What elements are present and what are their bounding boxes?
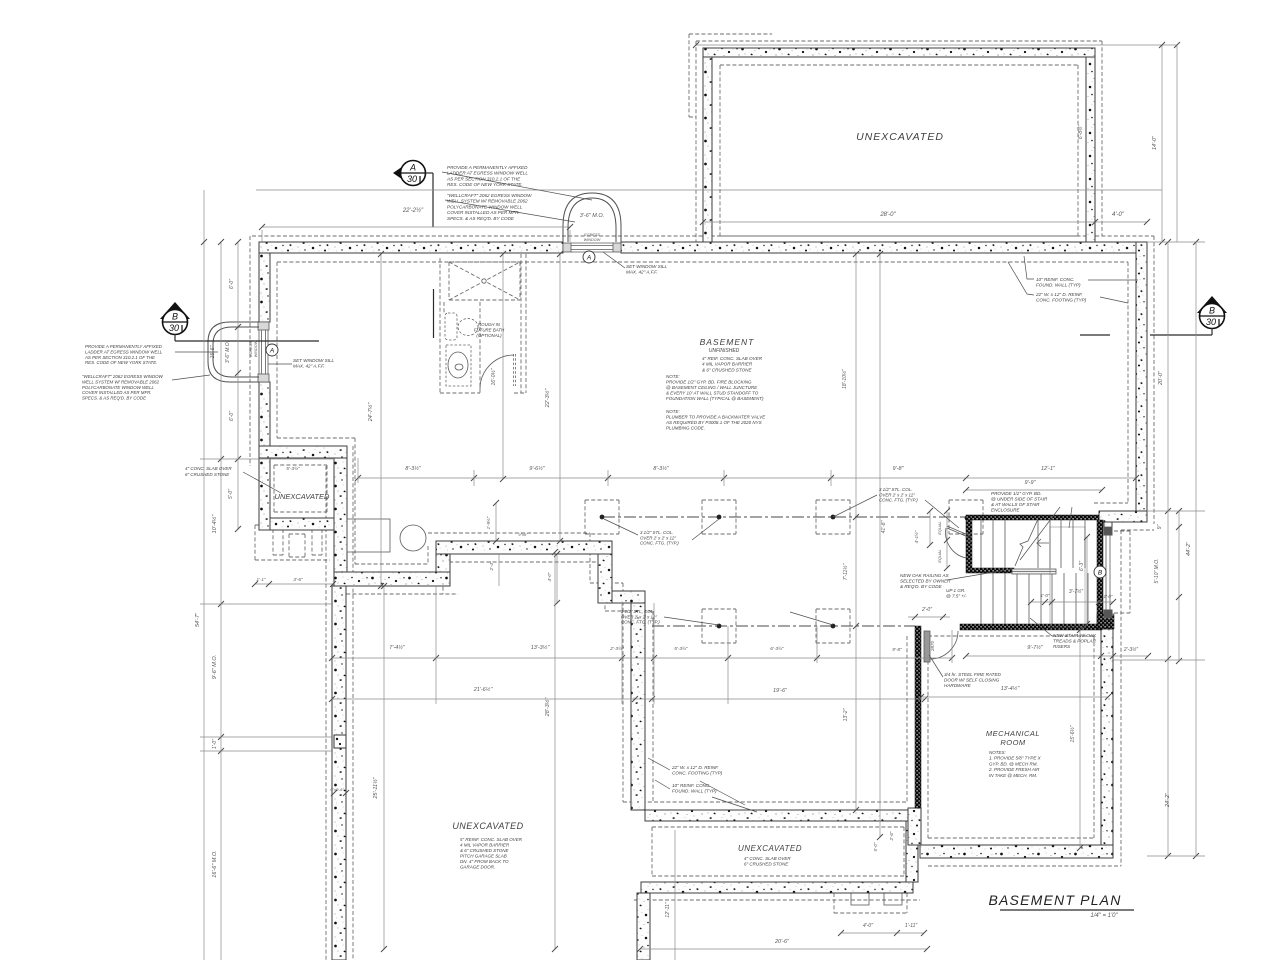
svg-text:4 MIL VAPOR BARRIER: 4 MIL VAPOR BARRIER: [702, 362, 753, 367]
svg-text:SPECS. & AS REQ'D. BY CODE: SPECS. & AS REQ'D. BY CODE: [82, 396, 146, 401]
svg-text:18'-10½": 18'-10½": [841, 369, 848, 389]
svg-text:EQUAL: EQUAL: [937, 549, 942, 563]
svg-text:EGRESS: EGRESS: [584, 233, 600, 237]
svg-text:15'-6½": 15'-6½": [1069, 725, 1076, 742]
svg-text:MAX. 42" A.F.F.: MAX. 42" A.F.F.: [293, 364, 325, 369]
svg-text:22'-3½": 22'-3½": [544, 388, 551, 409]
svg-text:4'-0": 4'-0": [547, 572, 552, 581]
svg-text:@ BASEMENT CEILING / WALL JUNC: @ BASEMENT CEILING / WALL JUNCTURE: [666, 385, 758, 390]
svg-text:2870: 2870: [967, 532, 972, 544]
svg-text:PROVIDE A PERMANENTLY AFFIXED: PROVIDE A PERMANENTLY AFFIXED: [447, 165, 528, 170]
svg-text:4 MIL VAPOR BARRIER: 4 MIL VAPOR BARRIER: [460, 843, 510, 848]
svg-text:A: A: [269, 347, 274, 354]
svg-text:UNEXCAVATED: UNEXCAVATED: [452, 821, 523, 831]
svg-text:PITCH GARAGE SLAB: PITCH GARAGE SLAB: [460, 854, 507, 859]
svg-text:BASEMENT PLAN: BASEMENT PLAN: [988, 892, 1121, 908]
svg-text:5'-3½": 5'-3½": [674, 645, 688, 652]
svg-text:"WELLCRAFT" 2062 EGRESS WINDOW: "WELLCRAFT" 2062 EGRESS WINDOW: [447, 193, 532, 198]
svg-text:NOTE:: NOTE:: [666, 409, 681, 414]
svg-text:7'-4½": 7'-4½": [389, 644, 406, 651]
svg-text:& REQ'D. BY CODE: & REQ'D. BY CODE: [900, 584, 943, 589]
svg-text:ROOM: ROOM: [1000, 738, 1026, 747]
svg-text:AS PER SECTION 310.2.1 OF THE: AS PER SECTION 310.2.1 OF THE: [446, 176, 521, 181]
svg-text:FOUNDATION WALL (TYPICAL @ BAS: FOUNDATION WALL (TYPICAL @ BASEMENT): [666, 396, 764, 401]
svg-text:EGRESS: EGRESS: [249, 341, 253, 357]
svg-text:DN. 4" FROM BACK TO: DN. 4" FROM BACK TO: [460, 859, 509, 864]
svg-text:FOUND. WALL (TYP): FOUND. WALL (TYP): [672, 789, 717, 794]
svg-text:3 1/2" STL. COL.: 3 1/2" STL. COL.: [621, 609, 654, 614]
svg-text:21'-6½": 21'-6½": [473, 686, 494, 693]
svg-text:1'-0": 1'-0": [1104, 594, 1113, 599]
svg-text:ROUGH IN: ROUGH IN: [478, 322, 501, 327]
svg-text:20'-6": 20'-6": [774, 939, 790, 945]
svg-text:WINDOW: WINDOW: [254, 340, 258, 357]
svg-text:3 1/2" STL. COL.: 3 1/2" STL. COL.: [640, 530, 673, 535]
svg-text:9": 9": [1157, 525, 1163, 530]
svg-text:4" CONC. SLAB OVER: 4" CONC. SLAB OVER: [185, 466, 232, 471]
svg-text:22" W. x 12" D. REINF.: 22" W. x 12" D. REINF.: [671, 765, 719, 770]
svg-text:25'-11½": 25'-11½": [372, 776, 379, 799]
svg-text:BASEMENT: BASEMENT: [700, 337, 755, 347]
svg-text:10" REINF. CONC.: 10" REINF. CONC.: [1036, 277, 1075, 282]
svg-text:14'-0": 14'-0": [1152, 135, 1158, 150]
svg-text:UNFINISHED: UNFINISHED: [709, 348, 740, 354]
svg-text:6" CRUSHED STONE: 6" CRUSHED STONE: [185, 472, 230, 477]
svg-text:3/4 hr. STEEL FIRE RATED: 3/4 hr. STEEL FIRE RATED: [944, 672, 1002, 677]
svg-text:3'-6": 3'-6": [293, 577, 303, 583]
svg-text:6'-3½": 6'-3½": [770, 645, 784, 652]
svg-text:"WELLCRAFT" 2062 EGRESS WINDOW: "WELLCRAFT" 2062 EGRESS WINDOW: [82, 374, 164, 379]
svg-text:5'-10" M.O.: 5'-10" M.O.: [1154, 559, 1160, 584]
svg-text:5'-0": 5'-0": [873, 842, 878, 851]
svg-text:4" REIF. CONC. SLAB OVER: 4" REIF. CONC. SLAB OVER: [702, 356, 763, 361]
svg-text:& EVERY 10' AT WALL STUD STAND: & EVERY 10' AT WALL STUD STANDOFF TO: [666, 391, 759, 396]
svg-text:8'-3½": 8'-3½": [653, 465, 670, 472]
svg-text:13'-4½": 13'-4½": [1001, 685, 1021, 692]
svg-text:2'-0": 2'-0": [921, 607, 932, 613]
svg-text:2'-3½": 2'-3½": [609, 645, 624, 652]
svg-text:13'-3½": 13'-3½": [531, 644, 551, 651]
svg-text:5" REINF. CONC. SLAB OVER: 5" REINF. CONC. SLAB OVER: [460, 837, 523, 842]
svg-text:B: B: [1209, 306, 1215, 316]
svg-text:9'-9": 9'-9": [1025, 480, 1037, 486]
svg-text:24'-7½": 24'-7½": [367, 402, 374, 423]
svg-text:1. PROVIDE 5/8" TYPE X: 1. PROVIDE 5/8" TYPE X: [989, 756, 1042, 761]
svg-text:3'-6" M.O.: 3'-6" M.O.: [580, 213, 604, 219]
svg-text:8'-3½": 8'-3½": [405, 465, 422, 472]
svg-text:UNEXCAVATED: UNEXCAVATED: [275, 492, 330, 501]
svg-text:& AT WALLS OF STAIR: & AT WALLS OF STAIR: [991, 502, 1040, 507]
svg-text:SET WINDOW SILL: SET WINDOW SILL: [626, 264, 668, 269]
svg-text:1'-0": 1'-0": [1041, 593, 1050, 598]
svg-text:POLYCARBONATE WINDOW WELL: POLYCARBONATE WINDOW WELL: [82, 385, 155, 390]
svg-text:PROVIDE 1/2" GYP. BD. FIRE BLO: PROVIDE 1/2" GYP. BD. FIRE BLOCKING: [666, 380, 752, 385]
svg-text:SET WINDOW SILL: SET WINDOW SILL: [293, 358, 335, 363]
svg-text:B: B: [1098, 569, 1103, 576]
svg-text:OVER 2' x 2' x 12": OVER 2' x 2' x 12": [879, 492, 915, 497]
svg-text:FOUND. WALL (TYP): FOUND. WALL (TYP): [1036, 283, 1081, 288]
svg-text:CONC. FOOTING (TYP): CONC. FOOTING (TYP): [1036, 298, 1087, 303]
svg-text:UNEXCAVATED: UNEXCAVATED: [856, 131, 944, 143]
svg-text:6" CRUSHED STONE: 6" CRUSHED STONE: [744, 862, 789, 867]
svg-text:9'-7½": 9'-7½": [1027, 644, 1044, 651]
svg-text:6"x0'-6": 6"x0'-6": [330, 787, 344, 792]
svg-text:WELL SYSTEM W/ REMOVABLE 2062: WELL SYSTEM W/ REMOVABLE 2062: [82, 379, 160, 384]
svg-text:PROVIDE A PERMANENTLY AFFIXED: PROVIDE A PERMANENTLY AFFIXED: [85, 344, 163, 349]
svg-text:& 6" CRUSHED STONE: & 6" CRUSHED STONE: [460, 848, 510, 853]
svg-text:@ UNDER SIDE OF STAIR: @ UNDER SIDE OF STAIR: [991, 497, 1048, 502]
svg-text:NOTE:: NOTE:: [666, 374, 681, 379]
svg-text:NEW STAIR W/ OAK: NEW STAIR W/ OAK: [1053, 633, 1097, 638]
svg-text:28'-0": 28'-0": [879, 212, 896, 218]
svg-text:AS REQUIRED BY P3008.1 OF THE: AS REQUIRED BY P3008.1 OF THE 2020 NYS: [665, 420, 762, 425]
svg-text:OVER 2' x 2' x 12": OVER 2' x 2' x 12": [621, 614, 657, 619]
svg-text:1/4" = 1'0": 1/4" = 1'0": [1090, 913, 1118, 919]
svg-text:MECHANICAL: MECHANICAL: [986, 729, 1040, 738]
svg-text:UP 1 GR.: UP 1 GR.: [946, 588, 966, 593]
svg-text:16'-6" M.O.: 16'-6" M.O.: [212, 850, 218, 877]
svg-text:2. PROVIDE FRESH AIR: 2. PROVIDE FRESH AIR: [988, 767, 1040, 772]
svg-text:22" W. x 12" D. REINF.: 22" W. x 12" D. REINF.: [1035, 292, 1083, 297]
svg-text:RES. CODE OF NEW YORK STATE.: RES. CODE OF NEW YORK STATE.: [85, 360, 157, 365]
svg-text:CONC. FTG. (TYP.): CONC. FTG. (TYP.): [621, 620, 660, 625]
svg-text:2'-4": 2'-4": [489, 561, 494, 571]
svg-text:6'-0": 6'-0": [229, 411, 235, 421]
svg-text:30: 30: [1206, 317, 1216, 327]
svg-text:CONC. FTG. (TYP.): CONC. FTG. (TYP.): [879, 498, 918, 503]
svg-text:30: 30: [169, 323, 179, 333]
svg-text:IN TAKE @ MECH. RM.: IN TAKE @ MECH. RM.: [989, 773, 1037, 778]
svg-text:DOOR W/ SELF CLOSING: DOOR W/ SELF CLOSING: [944, 678, 1000, 683]
svg-text:UNEXCAVATED: UNEXCAVATED: [738, 844, 802, 853]
svg-text:4'-1½": 4'-1½": [913, 530, 919, 543]
svg-text:LADDER AT EGRESS WINDOW WELL: LADDER AT EGRESS WINDOW WELL: [85, 349, 163, 354]
svg-text:28'-3½": 28'-3½": [544, 697, 551, 718]
svg-text:3'-6" M.O.: 3'-6" M.O.: [225, 341, 231, 363]
svg-text:4" CONC. SLAB OVER: 4" CONC. SLAB OVER: [744, 856, 791, 861]
svg-text:WELL SYSTEM W/ REMOVABLE 2062: WELL SYSTEM W/ REMOVABLE 2062: [447, 199, 528, 204]
svg-text:3'-7½": 3'-7½": [1069, 588, 1083, 595]
svg-text:A: A: [586, 254, 591, 261]
svg-text:4'-0": 4'-0": [863, 923, 873, 929]
svg-text:2'-6": 2'-6": [889, 831, 894, 841]
svg-text:6'-8½": 6'-8½": [1077, 125, 1084, 139]
svg-text:9"x6": 9"x6": [518, 532, 528, 537]
svg-text:20'-0": 20'-0": [1158, 370, 1164, 386]
svg-text:54'-7": 54'-7": [195, 612, 201, 627]
svg-text:41'-8": 41'-8": [881, 520, 887, 533]
svg-text:@ 7.5" +/-: @ 7.5" +/-: [946, 594, 967, 599]
svg-text:19'-6": 19'-6": [773, 688, 788, 694]
svg-text:GYP. BD. @ MECH RM.: GYP. BD. @ MECH RM.: [989, 761, 1038, 766]
svg-text:16'-0½": 16'-0½": [490, 368, 497, 385]
svg-text:PLUMBING CODE.: PLUMBING CODE.: [666, 426, 705, 431]
svg-text:9'-6½": 9'-6½": [529, 465, 546, 472]
svg-text:13'-2": 13'-2": [843, 708, 849, 721]
svg-text:2870: 2870: [930, 640, 935, 652]
svg-text:GARAGE DOOR.: GARAGE DOOR.: [460, 865, 495, 870]
svg-text:1'-1": 1'-1": [257, 577, 266, 582]
svg-text:WINDOW: WINDOW: [584, 238, 601, 242]
svg-text:MAX. 42" A.F.F.: MAX. 42" A.F.F.: [626, 270, 658, 275]
svg-text:4'-0": 4'-0": [1112, 212, 1125, 218]
svg-text:SELECTED BY OWNER: SELECTED BY OWNER: [900, 579, 951, 584]
svg-text:12'-11": 12'-11": [665, 902, 671, 917]
svg-text:7'-11½": 7'-11½": [842, 564, 849, 581]
svg-text:5'-3½": 5'-3½": [286, 465, 300, 472]
svg-text:OVER 2' x 2' x 12": OVER 2' x 2' x 12": [640, 535, 676, 540]
svg-text:9'-6" M.O.: 9'-6" M.O.: [212, 655, 218, 679]
svg-text:AS PER SECTION 310.2.1 OF THE: AS PER SECTION 310.2.1 OF THE: [84, 355, 155, 360]
svg-text:HARDWARE: HARDWARE: [944, 683, 972, 688]
svg-text:12'-1": 12'-1": [1041, 466, 1056, 472]
svg-text:6'-0": 6'-0": [229, 279, 235, 289]
svg-text:9'-8": 9'-8": [892, 647, 902, 653]
svg-text:3 1/2" STL. COL.: 3 1/2" STL. COL.: [879, 487, 912, 492]
svg-text:10" REINF. CONC.: 10" REINF. CONC.: [672, 783, 711, 788]
svg-text:10'-4½": 10'-4½": [211, 514, 218, 534]
svg-text:1'-9½": 1'-9½": [485, 516, 491, 529]
svg-text:PROVIDE 1/2" GYP. BD.: PROVIDE 1/2" GYP. BD.: [991, 491, 1042, 496]
svg-text:B: B: [172, 312, 178, 322]
svg-text:2'-3½": 2'-3½": [1123, 646, 1138, 653]
svg-text:44'-2": 44'-2": [1186, 541, 1192, 556]
svg-text:30: 30: [407, 174, 417, 184]
svg-text:CONC. FOOTING (TYP): CONC. FOOTING (TYP): [672, 771, 723, 776]
svg-text:FUTURE BATH: FUTURE BATH: [474, 327, 505, 332]
svg-text:TREADS & POPLAR: TREADS & POPLAR: [1053, 639, 1097, 644]
svg-text:A: A: [409, 163, 416, 173]
svg-text:COVER INSTALLED AS PER MFR.: COVER INSTALLED AS PER MFR.: [82, 390, 152, 395]
svg-text:& 6" CRUSHED STONE: & 6" CRUSHED STONE: [702, 367, 752, 372]
svg-text:1'-0": 1'-0": [212, 739, 218, 749]
svg-text:24'-2": 24'-2": [1165, 792, 1171, 808]
svg-text:9'-8": 9'-8": [893, 466, 905, 472]
svg-text:5'-0": 5'-0": [228, 489, 234, 499]
svg-text:EQUAL: EQUAL: [937, 521, 942, 535]
svg-text:1'-11": 1'-11": [905, 923, 918, 929]
svg-text:6'-3": 6'-3": [1079, 561, 1085, 571]
svg-text:ENCLOSURE: ENCLOSURE: [991, 508, 1021, 513]
svg-text:(OPTIONAL): (OPTIONAL): [476, 333, 502, 338]
svg-text:NEW OAK RAILING AS: NEW OAK RAILING AS: [900, 573, 950, 578]
svg-text:PLUMBER TO PROVIDE A BACKWATER: PLUMBER TO PROVIDE A BACKWATER VALVE: [666, 415, 766, 420]
svg-text:RISERS: RISERS: [1053, 644, 1071, 649]
svg-text:NOTES:: NOTES:: [989, 750, 1007, 755]
svg-text:CONC. FTG. (TYP.): CONC. FTG. (TYP.): [640, 541, 679, 546]
svg-text:22'-2½": 22'-2½": [402, 207, 424, 214]
svg-text:SPECS. & AS REQ'D. BY CODE: SPECS. & AS REQ'D. BY CODE: [447, 216, 515, 221]
